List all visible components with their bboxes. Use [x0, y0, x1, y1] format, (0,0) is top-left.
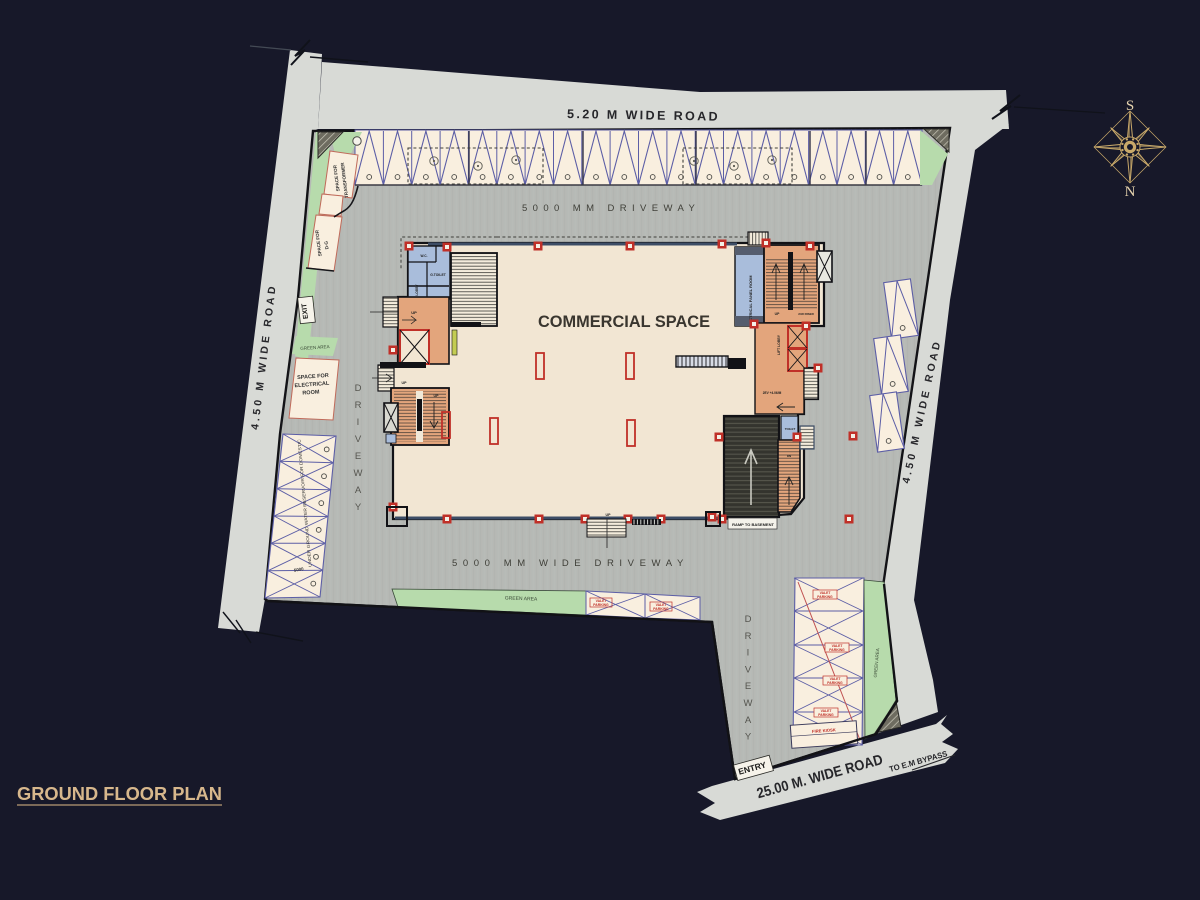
svg-text:W: W: [744, 698, 753, 709]
svg-text:W: W: [354, 468, 363, 479]
svg-text:2EV +4.06/M: 2EV +4.06/M: [763, 391, 782, 395]
svg-text:RAMP TO BASEMENT: RAMP TO BASEMENT: [732, 522, 774, 527]
svg-text:Y: Y: [355, 502, 362, 513]
svg-text:A: A: [355, 485, 362, 496]
svg-text:G.TOILET: G.TOILET: [430, 273, 447, 277]
svg-text:S: S: [1126, 98, 1134, 114]
svg-text:5000 MM WIDE DRIVEWAY: 5000 MM WIDE DRIVEWAY: [452, 558, 689, 569]
svg-text:TOILET: TOILET: [785, 427, 796, 431]
svg-text:N: N: [1125, 184, 1136, 200]
svg-text:PARKING: PARKING: [827, 681, 843, 685]
svg-text:PARKING: PARKING: [818, 713, 834, 717]
svg-text:E: E: [745, 681, 751, 692]
svg-text:E: E: [355, 451, 361, 462]
svg-text:V: V: [355, 434, 362, 445]
svg-text:A: A: [745, 715, 752, 726]
svg-text:5000 MM DRIVEWAY: 5000 MM DRIVEWAY: [522, 203, 700, 214]
svg-text:COMMERCIAL SPACE: COMMERCIAL SPACE: [538, 313, 710, 331]
svg-text:PARKING: PARKING: [817, 595, 833, 599]
svg-text:UP: UP: [411, 310, 417, 315]
svg-text:UP: UP: [402, 381, 408, 385]
svg-text:GREEN AREA: GREEN AREA: [505, 595, 538, 602]
svg-text:R: R: [745, 631, 752, 642]
svg-text:V: V: [745, 664, 752, 675]
svg-text:ROOM: ROOM: [302, 389, 320, 396]
svg-text:24R RISER: 24R RISER: [798, 312, 814, 316]
svg-text:LOBBY: LOBBY: [415, 284, 419, 296]
svg-text:UP: UP: [434, 394, 440, 398]
svg-text:D: D: [745, 614, 752, 625]
svg-text:PARKING: PARKING: [829, 648, 845, 652]
svg-text:I: I: [357, 417, 360, 428]
svg-text:R: R: [355, 400, 362, 411]
svg-text:Y: Y: [745, 732, 752, 743]
svg-text:D: D: [355, 383, 362, 394]
svg-text:GROUND FLOOR PLAN: GROUND FLOOR PLAN: [17, 784, 222, 804]
svg-text:D-G: D-G: [323, 240, 329, 249]
svg-text:I: I: [747, 648, 750, 659]
svg-text:UP: UP: [775, 312, 780, 316]
svg-text:LIFT LOBBY: LIFT LOBBY: [777, 334, 781, 355]
svg-text:PARKING: PARKING: [593, 603, 609, 607]
svg-text:UP: UP: [606, 513, 612, 517]
svg-text:5.20 M WIDE ROAD: 5.20 M WIDE ROAD: [567, 107, 720, 124]
svg-text:DN: DN: [787, 454, 791, 458]
svg-text:W.C.: W.C.: [421, 254, 428, 258]
svg-text:PARKING: PARKING: [653, 607, 669, 611]
